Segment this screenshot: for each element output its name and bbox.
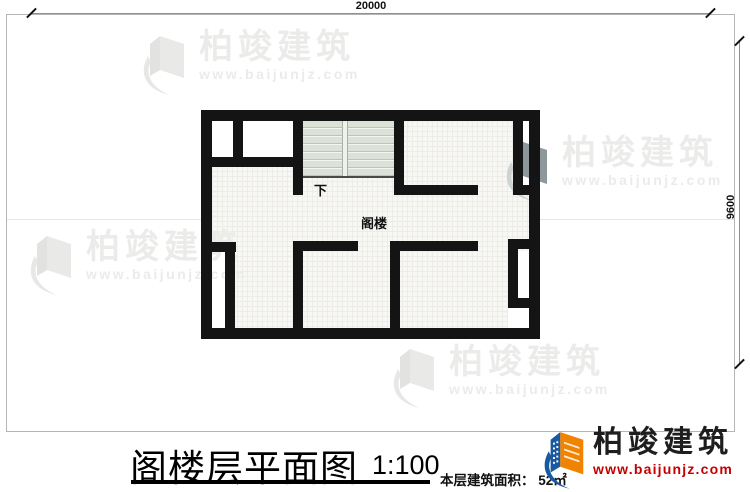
watermark-title: 柏竣建筑: [86, 230, 247, 264]
right-window-gap-low: [508, 308, 529, 328]
floor-plan: 下 阁楼: [201, 110, 540, 339]
stairs-down-label: 下: [314, 180, 327, 199]
lowerright-window-inner-wall: [508, 249, 518, 298]
outer-wall-top: [201, 110, 540, 121]
watermark-logo-icon: [27, 230, 77, 298]
watermark-title: 柏竣建筑: [449, 345, 610, 379]
lower-room-wall-2: [390, 241, 400, 328]
right-dimension-label: 9600: [725, 187, 739, 227]
watermark: 柏竣建筑 www.baijunjz.com: [27, 230, 247, 298]
watermark-url: www.baijunjz.com: [562, 172, 723, 188]
top-dimension-line: [31, 13, 711, 14]
stair-bottom-edge: [303, 176, 394, 178]
title-underline: [131, 480, 430, 484]
stair-right-wall: [394, 121, 404, 195]
watermark-title: 柏竣建筑: [562, 136, 723, 170]
right-dimension-line: [739, 41, 740, 364]
outer-wall-bottom: [201, 328, 540, 339]
watermark: 柏竣建筑 www.baijunjz.com: [140, 30, 360, 98]
topright-room-bottom-wall: [394, 185, 478, 195]
stair-flight-left: [303, 121, 342, 178]
watermark-url: www.baijunjz.com: [449, 381, 610, 397]
stair-left-wall: [293, 121, 303, 195]
watermark-logo-icon: [503, 136, 553, 204]
company-logo-name: 柏竣建筑: [593, 428, 733, 458]
lowerright-window-connector: [508, 298, 529, 308]
attic-room-label: 阁楼: [361, 213, 387, 232]
lower-right-stub-wall: [508, 239, 529, 249]
company-logo-url: www.baijunjz.com: [593, 461, 733, 477]
staircase: [303, 121, 394, 178]
floor-area-label: 本层建筑面积：: [440, 473, 535, 488]
watermark-logo-icon: [390, 345, 440, 409]
lower-hwall-right: [400, 241, 478, 251]
closet-bottom-wall: [201, 157, 303, 167]
lower-room-wall-1: [293, 241, 303, 328]
watermark-title: 柏竣建筑: [199, 30, 360, 64]
closet-room-a: [212, 121, 233, 157]
closet-room-b: [243, 121, 293, 157]
lower-hwall-left: [303, 241, 358, 251]
company-logo-icon: [541, 428, 589, 490]
watermark-url: www.baijunjz.com: [86, 266, 247, 282]
top-dimension-label: 20000: [340, 0, 402, 12]
outer-wall-left: [201, 110, 212, 339]
watermark: 柏竣建筑 www.baijunjz.com: [390, 345, 610, 409]
drawing-scale: 1:100: [372, 450, 440, 481]
watermark: 柏竣建筑 www.baijunjz.com: [503, 136, 723, 204]
company-logo: 柏竣建筑 www.baijunjz.com: [541, 428, 733, 490]
watermark-url: www.baijunjz.com: [199, 66, 360, 82]
stair-flight-right: [348, 121, 394, 178]
watermark-logo-icon: [140, 30, 190, 98]
drawing-canvas: 20000 9600: [0, 0, 750, 492]
right-window-channel-low: [518, 251, 529, 298]
